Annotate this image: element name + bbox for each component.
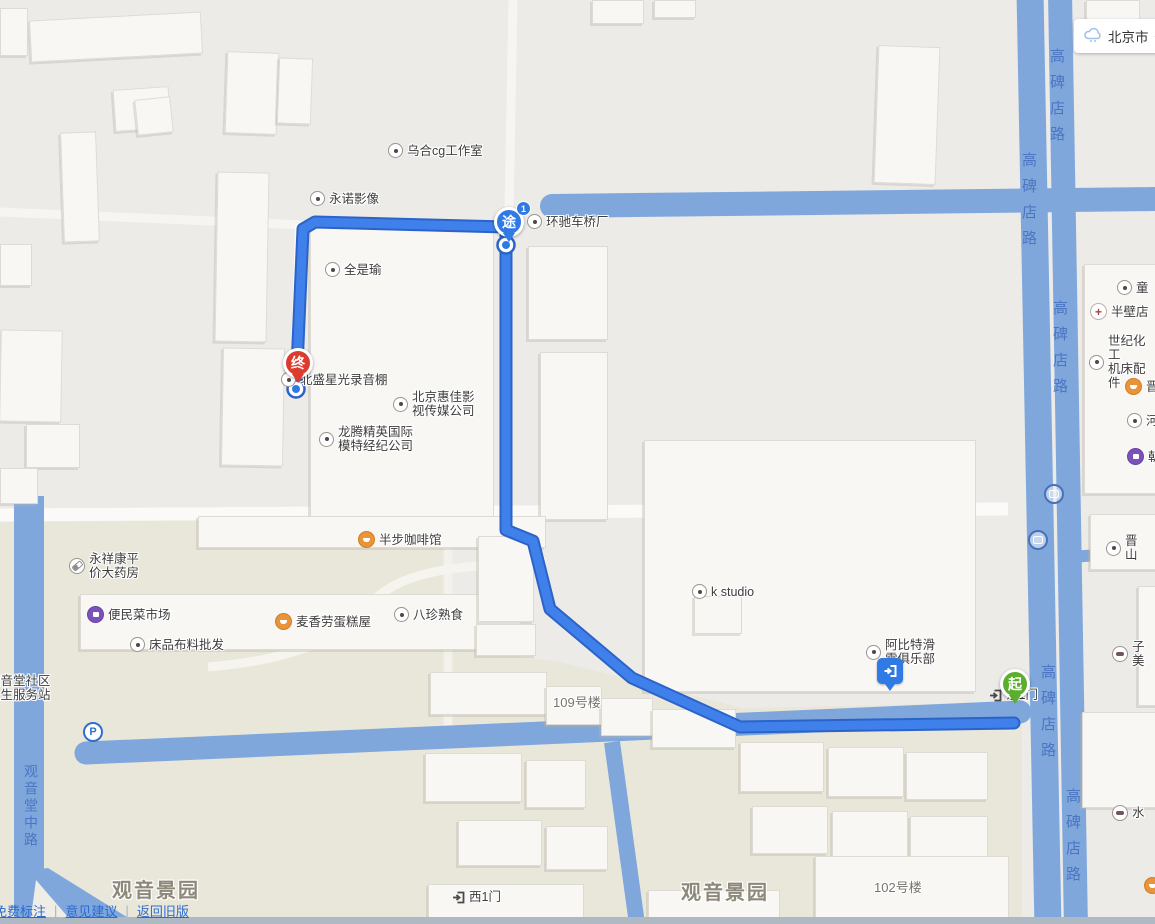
- poi-jinshan[interactable]: 晋 山: [1106, 534, 1138, 562]
- link-free-annotation[interactable]: 免费标注: [0, 901, 46, 920]
- parking-icon[interactable]: P: [83, 722, 103, 742]
- poi-he[interactable]: 河: [1127, 413, 1155, 428]
- shopping-icon: [1127, 448, 1144, 465]
- poi-yongxiang-pharmacy[interactable]: 永祥康平 价大药房: [69, 552, 139, 580]
- poi-maixianglao-cake-shop[interactable]: 麦香劳蛋糕屋: [275, 613, 371, 630]
- poi-dot-icon: [393, 397, 408, 412]
- hospital-icon: +: [1090, 303, 1107, 320]
- link-feedback[interactable]: 意见建议: [65, 901, 117, 920]
- poi-k-studio[interactable]: k studio: [692, 584, 754, 599]
- route-start-marker[interactable]: 起: [1000, 669, 1030, 699]
- car-icon: [1112, 805, 1128, 821]
- food-icon: [1125, 378, 1142, 395]
- car-icon: [1112, 646, 1128, 662]
- poi-dot-icon: [388, 143, 403, 158]
- poi-banbu-cafe[interactable]: 半步咖啡馆: [358, 531, 442, 548]
- poi-shui-auto[interactable]: 水: [1112, 805, 1145, 821]
- bus-stop-icon[interactable]: [1044, 484, 1064, 504]
- footer-links: 免费标注 | 意见建议 | 返回旧版: [0, 901, 189, 920]
- city-name: 北京市: [1108, 26, 1149, 46]
- food-icon: [358, 531, 375, 548]
- gate-icon: [452, 891, 465, 904]
- food-icon: [275, 613, 292, 630]
- poi-dot-icon: [394, 607, 409, 622]
- poi-huanchi-cheqiaochang[interactable]: 环驰车桥厂: [527, 214, 609, 229]
- poi-longteng-model-agency[interactable]: 龙腾精英国际 模特经纪公司: [319, 425, 413, 453]
- poi-dot-icon: [866, 645, 881, 660]
- weather-cloud-icon: [1083, 27, 1103, 46]
- entrance-marker[interactable]: [877, 658, 903, 684]
- bus-stop-icon[interactable]: [1028, 530, 1048, 550]
- shopping-icon: [87, 606, 104, 623]
- poi-chuangpin-wholesale[interactable]: 床品布料批发: [130, 637, 224, 652]
- via-count-badge: 1: [516, 201, 531, 216]
- poi-dot-icon: [692, 584, 707, 599]
- poi-guanyintang-clinic[interactable]: 观音堂社区 卫生服务站: [0, 674, 51, 702]
- map-canvas[interactable]: 高碑店路 高碑店路 高碑店路 高碑店路 高碑店路 观音堂中路 观音景园 观音景园…: [0, 0, 1155, 924]
- poi-jin-restaurant[interactable]: 晋: [1125, 378, 1155, 395]
- poi-dot-icon: [1117, 280, 1132, 295]
- poi-bazhen-deli[interactable]: 八珍熟食: [394, 607, 463, 622]
- poi-west-gate-1[interactable]: 西1门: [452, 890, 501, 904]
- poi-banbidian[interactable]: +半壁店: [1090, 303, 1149, 320]
- poi-wuhe-cg-studio[interactable]: 乌合cg工作室: [388, 143, 483, 158]
- footer-separator: |: [125, 903, 128, 918]
- poi-dot-icon: [325, 262, 340, 277]
- route-end-marker[interactable]: 终: [283, 348, 313, 378]
- poi-dot-icon: [319, 432, 334, 447]
- poi-dot-icon: [310, 191, 325, 206]
- poi-tong[interactable]: 童: [1117, 280, 1149, 295]
- door-arrow-icon: [882, 663, 898, 679]
- poi-dot-icon: [527, 214, 542, 229]
- poi-dot-icon: [1127, 413, 1142, 428]
- food-icon[interactable]: [1144, 877, 1155, 894]
- poi-dot-icon: [1089, 355, 1104, 370]
- poi-dot-icon: [1106, 541, 1121, 556]
- route-polyline: [0, 0, 1155, 924]
- footer-separator: |: [54, 903, 57, 918]
- link-back-old-version[interactable]: 返回旧版: [137, 901, 189, 920]
- poi-chao-shop[interactable]: 朝: [1127, 448, 1155, 465]
- gate-icon: [989, 689, 1002, 702]
- poi-quanshiyu[interactable]: 全是瑜: [325, 262, 382, 277]
- pharmacy-icon: [69, 558, 85, 574]
- poi-beijing-huijia-media[interactable]: 北京惠佳影 视传媒公司: [393, 390, 475, 418]
- poi-dot-icon: [130, 637, 145, 652]
- poi-yongnuo-yingxiang[interactable]: 永诺影像: [310, 191, 379, 206]
- poi-bianmin-market[interactable]: 便民菜市场: [87, 606, 171, 623]
- poi-zimei-auto[interactable]: 子 美: [1112, 640, 1145, 668]
- city-selector[interactable]: 北京市: [1074, 19, 1155, 53]
